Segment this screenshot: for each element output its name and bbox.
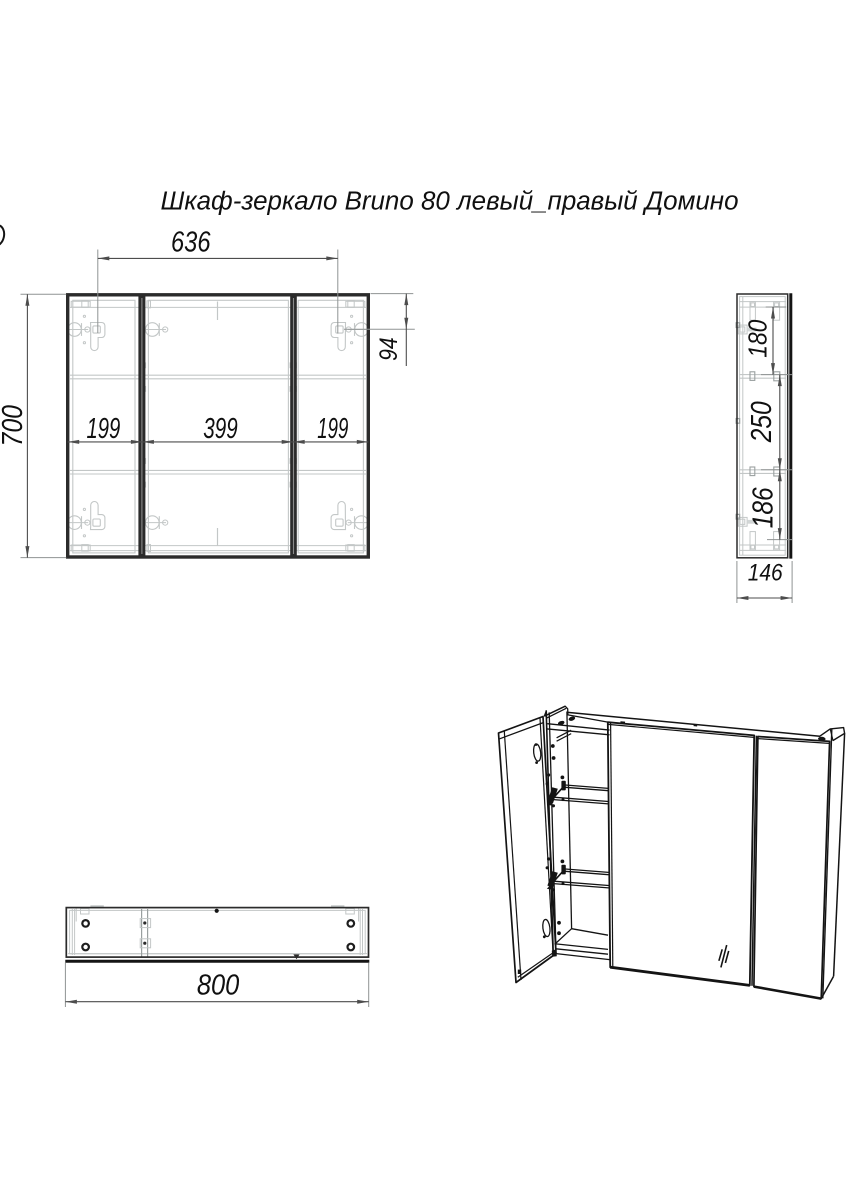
svg-text:94: 94 [375, 337, 403, 361]
svg-text:636: 636 [171, 227, 211, 259]
svg-text:800: 800 [197, 970, 239, 1002]
svg-text:146: 146 [748, 560, 783, 587]
svg-text:199: 199 [87, 413, 121, 445]
svg-text:700: 700 [0, 405, 29, 447]
svg-text:199: 199 [317, 413, 348, 445]
svg-text:186: 186 [748, 487, 780, 529]
svg-text:250: 250 [746, 401, 778, 443]
svg-text:Шкаф-зеркало Bruno 80 левый_пр: Шкаф-зеркало Bruno 80 левый_правый Домин… [161, 188, 739, 216]
svg-text:399: 399 [203, 413, 237, 445]
svg-text:180: 180 [743, 319, 773, 357]
